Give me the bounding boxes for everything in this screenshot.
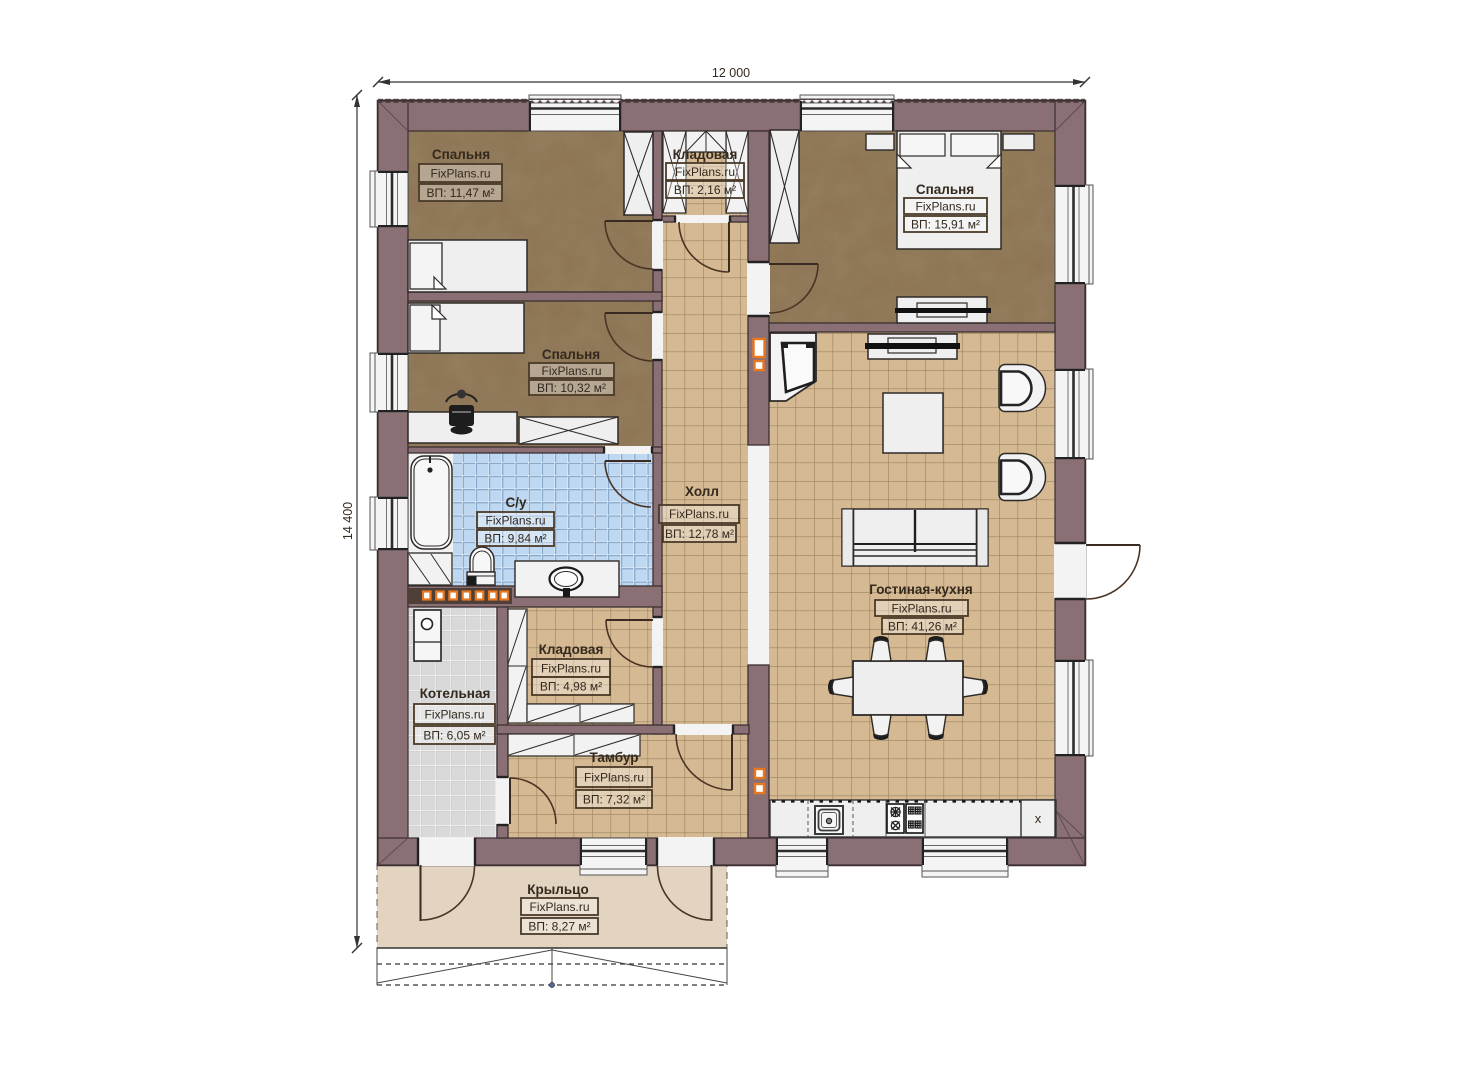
svg-text:x: x xyxy=(1035,811,1042,826)
svg-text:Крыльцо: Крыльцо xyxy=(527,882,588,897)
svg-text:FixPlans.ru: FixPlans.ru xyxy=(891,602,951,616)
svg-text:FixPlans.ru: FixPlans.ru xyxy=(541,364,601,378)
svg-text:Гостиная-кухня: Гостиная-кухня xyxy=(869,582,972,597)
svg-text:ВП: 7,32 м²: ВП: 7,32 м² xyxy=(583,793,645,807)
svg-text:С/у: С/у xyxy=(505,495,527,510)
svg-text:Тамбур: Тамбур xyxy=(590,750,639,765)
svg-text:ВП: 4,98 м²: ВП: 4,98 м² xyxy=(540,680,602,694)
svg-text:FixPlans.ru: FixPlans.ru xyxy=(675,165,735,179)
svg-text:FixPlans.ru: FixPlans.ru xyxy=(529,900,589,914)
svg-text:FixPlans.ru: FixPlans.ru xyxy=(424,708,484,722)
svg-text:14 400: 14 400 xyxy=(341,502,355,540)
svg-text:Спальня: Спальня xyxy=(432,147,490,162)
svg-text:ВП: 2,16 м²: ВП: 2,16 м² xyxy=(674,183,736,197)
svg-text:ВП: 9,84 м²: ВП: 9,84 м² xyxy=(484,532,546,546)
svg-text:ВП: 15,91 м²: ВП: 15,91 м² xyxy=(911,218,980,232)
svg-text:ВП: 12,78 м²: ВП: 12,78 м² xyxy=(665,527,734,541)
svg-text:Спальня: Спальня xyxy=(916,182,974,197)
svg-text:Холл: Холл xyxy=(685,484,719,499)
svg-text:12 000: 12 000 xyxy=(712,66,750,80)
svg-text:FixPlans.ru: FixPlans.ru xyxy=(430,167,490,181)
svg-text:FixPlans.ru: FixPlans.ru xyxy=(584,771,644,785)
svg-text:Кладовая: Кладовая xyxy=(673,147,738,162)
svg-text:ВП: 41,26 м²: ВП: 41,26 м² xyxy=(888,620,957,634)
svg-text:FixPlans.ru: FixPlans.ru xyxy=(669,507,729,521)
svg-text:Котельная: Котельная xyxy=(420,686,491,701)
svg-text:FixPlans.ru: FixPlans.ru xyxy=(541,662,601,676)
svg-text:Спальня: Спальня xyxy=(542,347,600,362)
svg-text:ВП: 10,32 м²: ВП: 10,32 м² xyxy=(537,381,606,395)
svg-text:ВП: 8,27 м²: ВП: 8,27 м² xyxy=(528,920,590,934)
svg-text:ВП: 6,05 м²: ВП: 6,05 м² xyxy=(423,729,485,743)
svg-text:FixPlans.ru: FixPlans.ru xyxy=(915,200,975,214)
svg-text:Кладовая: Кладовая xyxy=(539,642,604,657)
svg-text:ВП: 11,47 м²: ВП: 11,47 м² xyxy=(426,186,494,200)
svg-text:FixPlans.ru: FixPlans.ru xyxy=(485,514,545,528)
